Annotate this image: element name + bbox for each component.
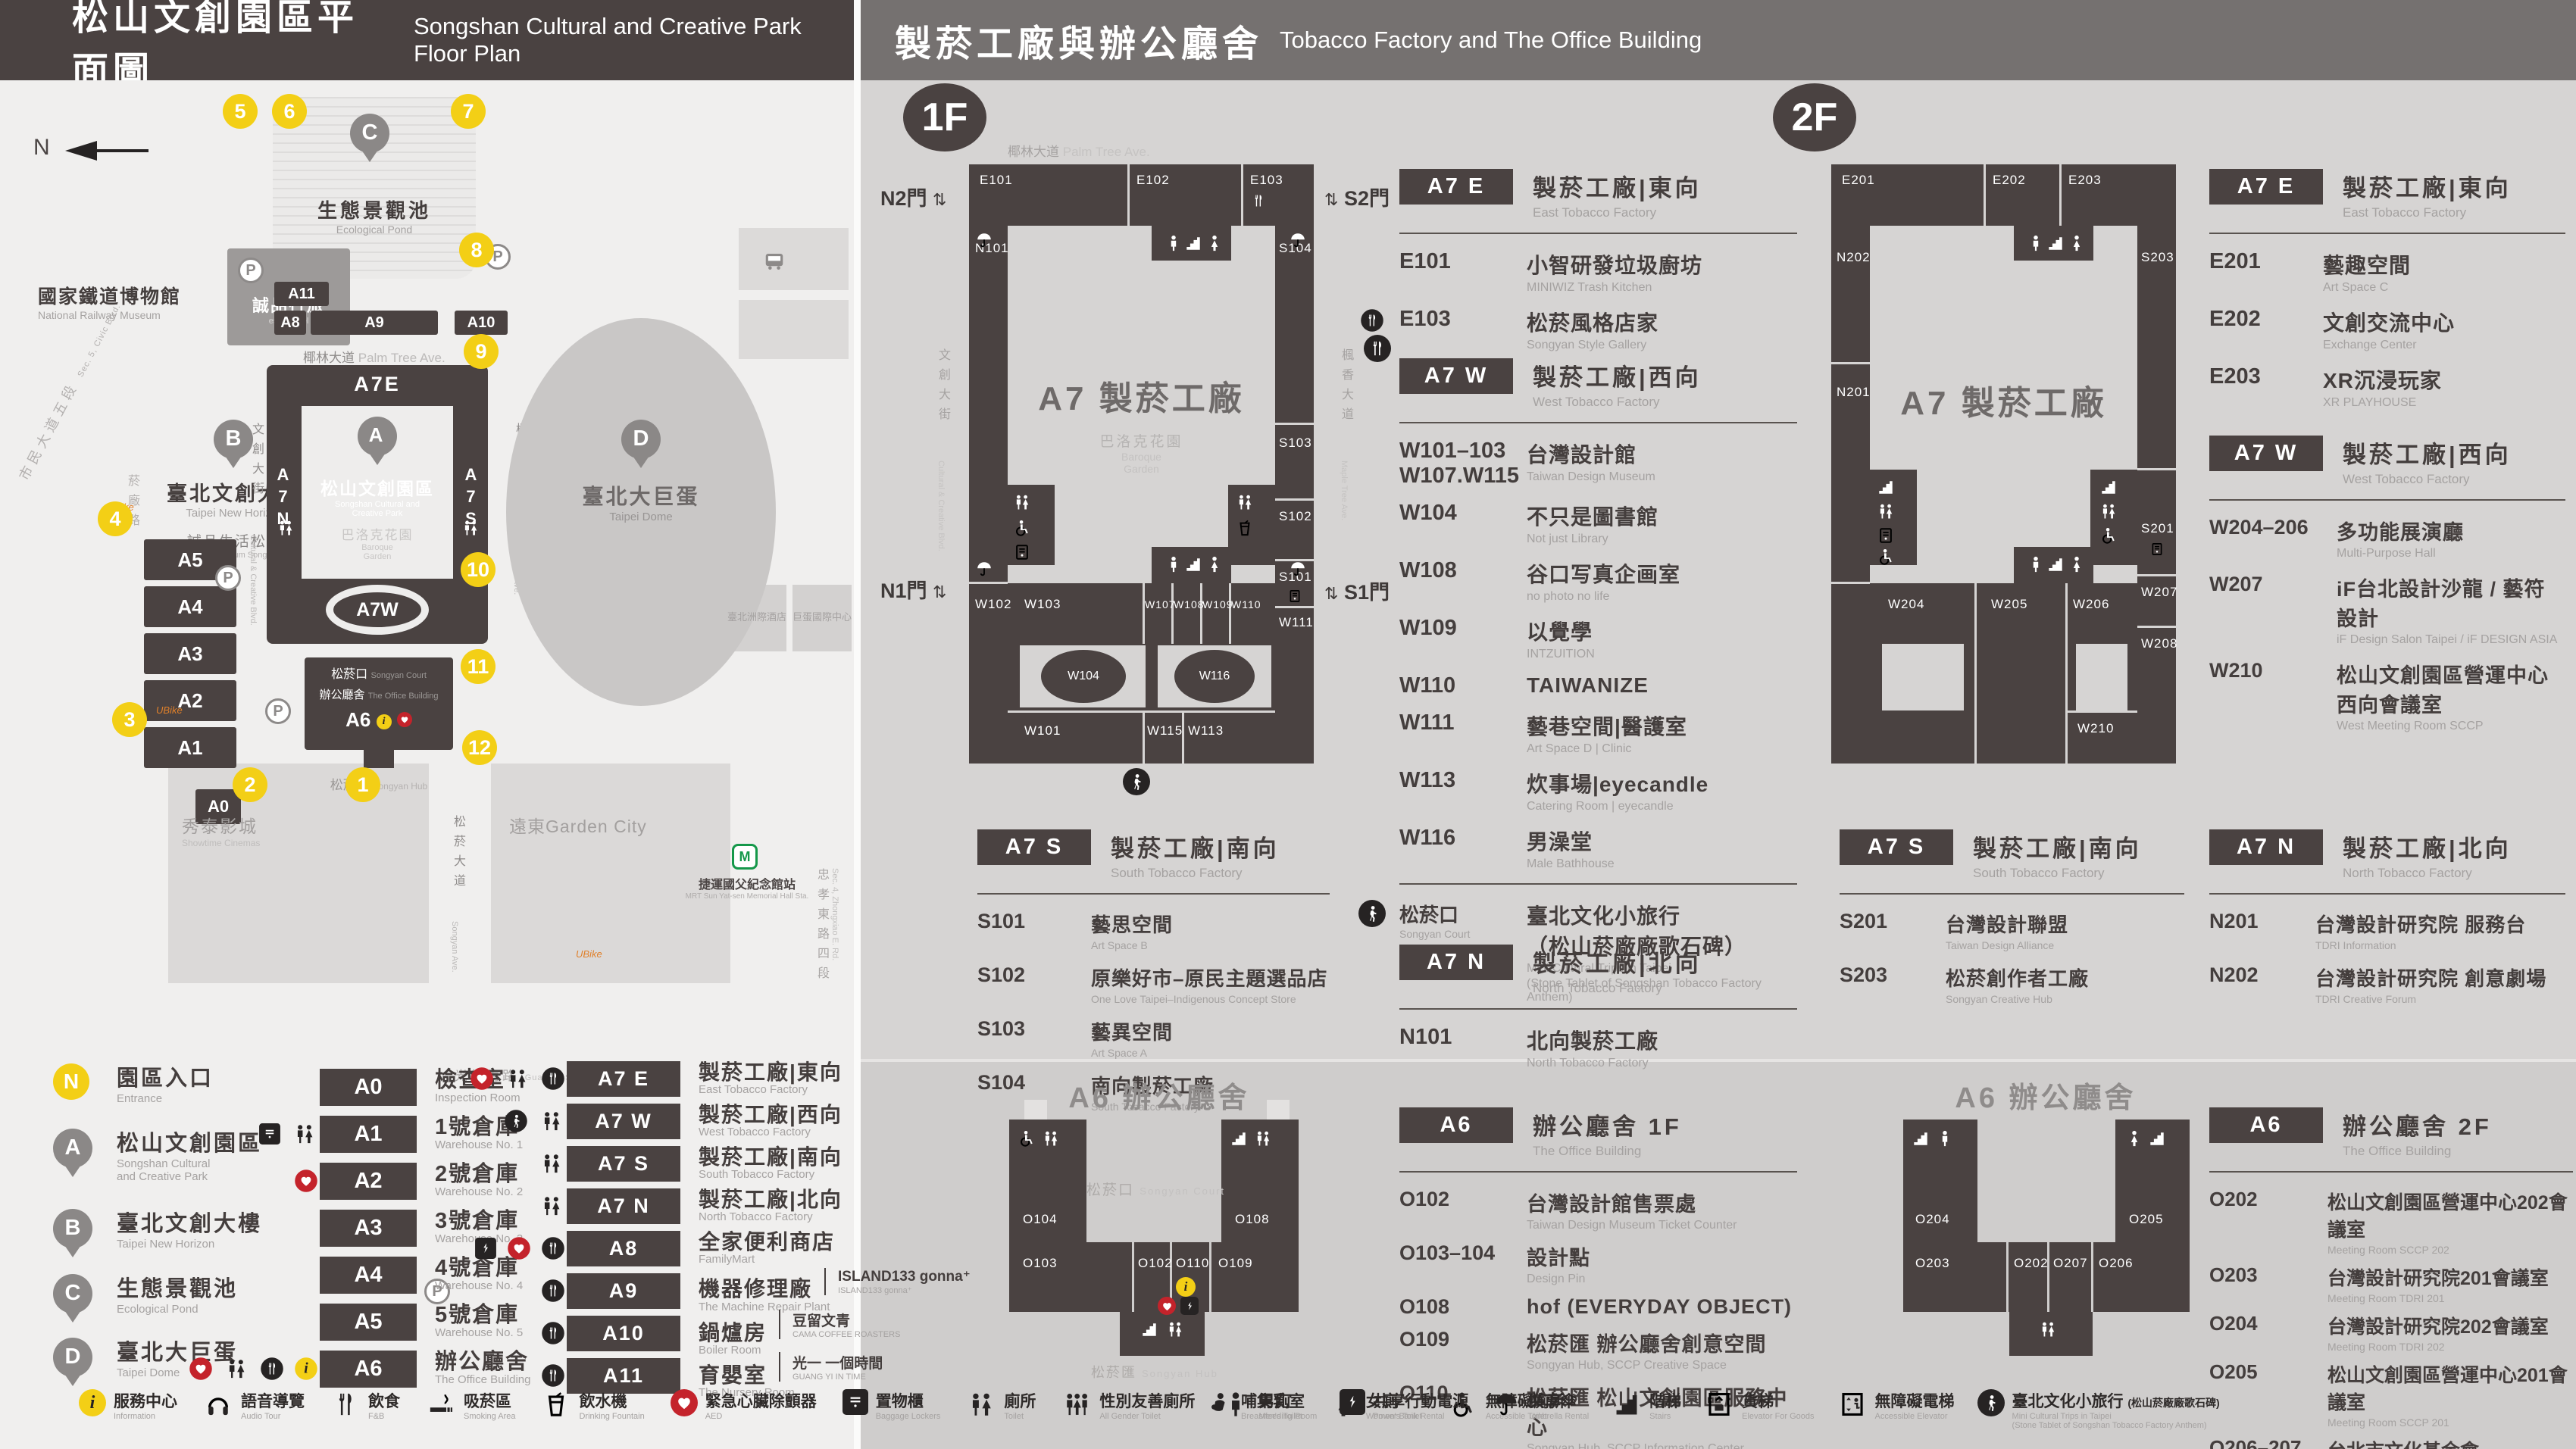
entrance-8: 8 [459, 233, 494, 267]
stairs-icon [1912, 1130, 1929, 1147]
toilet-icon [1236, 494, 1253, 511]
trip-icon [1123, 768, 1150, 795]
umbrella-rental-icon [1491, 1389, 1521, 1419]
room-w108: W108 [1174, 598, 1205, 611]
toilet-icon [1877, 503, 1894, 520]
section-a7e-1f: A7 E 製菸工廠|東向East Tobacco Factory E101 小智… [1399, 169, 1797, 364]
room-row: O206–207 台北市文化基金會松山文創園區營運中心Taipei Cultur… [2209, 1436, 2573, 1449]
room-w101: W101 [1024, 723, 1061, 739]
room-row: O203 台灣設計研究院201會議室Meeting Room TDRI 201 [2209, 1263, 2573, 1304]
room-row: N202 台灣設計研究院 創意劇場TDRI Creative Forum [2209, 963, 2565, 1005]
room-w109: W109 [1202, 598, 1233, 611]
room-w107: W107 [1145, 598, 1176, 611]
toilet-icon [2040, 1321, 2056, 1338]
room-o207: O207 [2053, 1256, 2088, 1271]
women-icon [2126, 1130, 2143, 1147]
room-s201: S201 [2141, 521, 2174, 536]
header-right: 製菸工廠與辦公廳舍 Tobacco Factory and The Office… [861, 0, 2576, 80]
block-a3: A3 [144, 633, 236, 674]
aed-icon [295, 1170, 317, 1192]
compass-arrow-icon [65, 141, 97, 161]
a7e-map-label: A7E [302, 373, 453, 396]
room-w110: W110 [1231, 598, 1261, 611]
f1-street-cultural: 文創大街 [933, 348, 952, 427]
bus-icon [759, 250, 789, 273]
room-row: E202 文創交流中心Exchange Center [2209, 307, 2565, 352]
room-row: W101–103W107.W115 台灣設計館Taiwan Design Mus… [1399, 439, 1797, 489]
fnb-icon [1361, 309, 1383, 332]
block-a4: A4 [144, 586, 236, 627]
a6-1f-bar [1009, 1242, 1299, 1312]
room-row: S201 台灣設計聯盟Taiwan Design Alliance [1840, 910, 2184, 951]
showtime-label: 秀泰影城 Showtime Cinemas [182, 812, 260, 848]
section-chip: A6 [1399, 1107, 1513, 1143]
powerbank-icon [1180, 1297, 1199, 1315]
a6-1f-stub [1120, 1312, 1205, 1356]
section-a6-2f: A6 辦公廳舍 2FThe Office Building O202 松山文創園… [2209, 1107, 2573, 1449]
women-icon [2068, 235, 2085, 251]
floor-plan-poster: 松山文創園區平面圖 Songshan Cultural and Creative… [0, 0, 2576, 1449]
room-row: S203 松菸創作者工廠Songyan Creative Hub [1840, 963, 2184, 1005]
f1-center-label: A7 製菸工廠 巴洛克花園 Baroque Garden [1008, 371, 1275, 475]
info-icon: i [1176, 1277, 1196, 1297]
fnb-icon [542, 1364, 564, 1387]
room-row: O109 松菸匯 辦公廳舍創意空間Songyan Hub, SCCP Creat… [1399, 1328, 1797, 1372]
toilet-icon [505, 1066, 530, 1091]
toilet-icon [277, 520, 294, 536]
room-row: W110 TAIWANIZE [1399, 673, 1797, 698]
umbrella-icon [976, 561, 993, 577]
audio-tour-icon [203, 1389, 233, 1419]
section-chip: A6 [2209, 1107, 2323, 1143]
a6-stub [364, 750, 394, 768]
room-row: W210 松山文創園區營運中心西向會議室West Meeting Room SC… [2209, 659, 2565, 733]
street-civic: 市民大道五段 Sec. 5, Civic Blvd. [14, 298, 124, 483]
legend-row: A7 S 製菸工廠|南向South Tobacco Factory [453, 1144, 971, 1183]
cultural-trip-icon [1977, 1389, 2005, 1416]
room-s203: S203 [2141, 250, 2174, 265]
umbrella-icon [1290, 561, 1306, 577]
wheelchair-icon [1877, 548, 1894, 565]
building-chip: A7 S [567, 1146, 680, 1182]
facility-item: 吸菸區Smoking Area [426, 1389, 515, 1421]
dome-center-label: 巨蛋國際中心 [789, 609, 854, 623]
room-w113: W113 [1188, 723, 1224, 739]
street-cultural-en: Cultural & Creative Blvd. [249, 535, 258, 626]
room-row: W207 iF台北設計沙龍 / 藝符設計iF Design Salon Taip… [2209, 573, 2565, 647]
building-chip: A5 [320, 1304, 417, 1341]
aed-icon [397, 712, 412, 727]
toilet-icon [1167, 1321, 1183, 1338]
room-row: W111 藝巷空間|醫護室Art Space D | Clinic [1399, 710, 1797, 756]
stairs-icon [1185, 556, 1202, 573]
gate-n1: N1門 ⇅ [880, 574, 946, 604]
metro-icon: M [732, 844, 758, 870]
room-w206: W206 [2073, 597, 2109, 612]
men-icon [1937, 1130, 1953, 1147]
legend-row: A8 全家便利商店FamilyMart [453, 1229, 971, 1268]
toilet-icon [462, 520, 479, 536]
women-icon [1206, 556, 1223, 573]
building-chip: A8 [567, 1231, 680, 1266]
entrance-12: 12 [462, 730, 497, 765]
room-w205: W205 [1991, 597, 2027, 612]
garden-city-label: 遠東Garden City [509, 812, 647, 838]
room-row: W104 不只是圖書館Not just Library [1399, 501, 1797, 546]
toilet-icon [1014, 494, 1030, 511]
room-o102: O102 [1138, 1256, 1173, 1271]
entrance-legend-icon: N [53, 1063, 89, 1100]
section-chip: A7 W [2209, 436, 2323, 471]
room-row: E201 藝趣空間Art Space C [2209, 249, 2565, 295]
locker-icon [1877, 527, 1894, 544]
room-n202: N202 [1837, 250, 1871, 265]
stairs-icon [2047, 556, 2064, 573]
toilet-icon [1255, 1130, 1271, 1147]
f2-court-a [1882, 644, 1964, 710]
room-e203: E203 [2068, 173, 2102, 188]
section-a7n-1f: A7 N 製菸工廠|北向North Tobacco Factory N101 北… [1399, 945, 1797, 1082]
street-songyan-en: Songyan Ave. [450, 921, 459, 973]
aed-icon [189, 1357, 212, 1380]
room-row: W109 以覺學INTZUITION [1399, 616, 1797, 661]
facility-item: i 服務中心Information [79, 1389, 177, 1421]
toilet-icon [292, 1122, 317, 1147]
men-icon [1165, 556, 1182, 573]
facility-item: 置物櫃Baggage Lockers [843, 1389, 941, 1421]
pond-label: 生態景觀池 Ecological Pond [273, 195, 476, 236]
section-a7e-2f: A7 E 製菸工廠|東向East Tobacco Factory E201 藝趣… [2209, 169, 2565, 422]
fnb-icon [1252, 194, 1265, 208]
section-title-en: Tobacco Factory and The Office Building [1280, 27, 1702, 54]
room-w111: W111 [1279, 615, 1314, 630]
umbrella-icon [1290, 232, 1306, 248]
street-songyan: 松菸大道 [449, 815, 467, 894]
entrance-1: 1 [345, 767, 380, 802]
section-chip: A7 S [977, 829, 1091, 865]
legend-buildings-b: A7 E 製菸工廠|東向East Tobacco Factory A7 W 製菸… [453, 1059, 971, 1398]
a6-1f-chimney [1267, 1100, 1290, 1121]
legend-entrance: N 園區入口 Entrance [53, 1060, 214, 1105]
f2-court-b [2076, 644, 2127, 710]
street-palm: 椰林大道 Palm Tree Ave. [303, 347, 445, 366]
locker-icon [843, 1389, 868, 1415]
room-row: S101 藝思空間Art Space B [977, 910, 1330, 951]
men-icon [1165, 235, 1182, 251]
room-e103: E103 [1250, 173, 1283, 188]
room-row: E103 松菸風格店家Songyan Style Gallery [1399, 307, 1797, 352]
entrance-6: 6 [272, 94, 307, 129]
room-o202: O202 [2014, 1256, 2049, 1271]
fnb-icon [330, 1389, 361, 1419]
ubike-label: UBike [156, 704, 183, 716]
facility-item: 哺集乳室 Breastfeeding Room [1203, 1389, 1317, 1421]
facility-legend-right: 哺集乳室 Breastfeeding Room 共享行動電源 Power Ban… [1203, 1389, 2220, 1430]
facility-item: 廁所Toilet [966, 1389, 1036, 1421]
room-row: O108 hof (EVERYDAY OBJECT) [1399, 1295, 1797, 1319]
women-icon [1206, 235, 1223, 251]
f1-right-col [1275, 226, 1314, 764]
building-chip: A0 [320, 1069, 417, 1106]
gate-s1: ⇅ S1門 [1324, 576, 1390, 605]
facility-item: 臺北文化小旅行 (松山菸廠廠歌石碑)Mini Cultural Trips in… [1977, 1389, 2220, 1430]
room-o108: O108 [1235, 1212, 1270, 1227]
room-w204: W204 [1888, 597, 1924, 612]
cultural-trip-icon [505, 1110, 527, 1132]
block-a10: A10 [455, 311, 508, 335]
entrance-3: 3 [112, 702, 147, 737]
room-row: O204 台灣設計研究院202會議室Meeting Room TDRI 202 [2209, 1312, 2573, 1353]
building-chip: A6 [320, 1351, 417, 1388]
room-s102: S102 [1279, 509, 1312, 524]
room-w102: W102 [975, 597, 1011, 612]
facility-item: 語音導覽Audio Tour [203, 1389, 305, 1421]
breastfeeding-room-icon [1203, 1389, 1233, 1419]
room-w104: W104 [1041, 650, 1126, 703]
section-chip: A7 E [2209, 169, 2323, 205]
hotel-ic-label: 臺北洲際酒店 [724, 609, 789, 623]
women-icon [2068, 556, 2085, 573]
entrance-7: 7 [451, 94, 486, 129]
room-o110: O110 [1176, 1256, 1209, 1271]
room-row: E203 XR沉浸玩家XR PLAYHOUSE [2209, 364, 2565, 410]
a6-1f-hub-label: 松菸匯 Songyan Hub [1091, 1362, 1218, 1382]
room-w116: W116 [1174, 650, 1255, 703]
room-row: O103–104 設計點Design Pin [1399, 1241, 1797, 1286]
pin-a: A [358, 417, 394, 465]
building-chip: A1 [320, 1116, 417, 1153]
a6-1f-court-label: 松菸口 Songyan Court [1086, 1179, 1225, 1199]
stairs-icon [2047, 235, 2064, 251]
page-title-zh: 松山文創園區平面圖 [72, 0, 397, 93]
stairs-icon [1230, 1130, 1247, 1147]
room-row: W116 男澡堂Male Bathhouse [1399, 826, 1797, 871]
block-a8: A8 [274, 311, 306, 335]
room-w207: W207 [2141, 585, 2177, 600]
section-title-zh: 製菸工廠與辦公廳舍 [895, 14, 1263, 67]
room-row: O102 台灣設計館售票處Taiwan Design Museum Ticket… [1399, 1188, 1797, 1232]
cargo-elevator-icon [1704, 1389, 1734, 1419]
building-chip: A11 [567, 1358, 680, 1394]
fnb-icon [542, 1322, 564, 1344]
entrance-10: 10 [461, 552, 496, 587]
wheelchair-icon [1018, 1130, 1035, 1147]
section-chip: A7 N [2209, 829, 2323, 865]
room-e101: E101 [980, 173, 1013, 188]
a6-block: 松菸口 Songyan Court 辦公廳舍 The Office Buildi… [305, 657, 453, 750]
compass-label: N [33, 135, 50, 161]
fnb-icon [542, 1237, 564, 1260]
ubike-label: UBike [576, 948, 602, 960]
badge-1f: 1F [903, 83, 986, 151]
aed-icon [671, 1389, 698, 1416]
f2-right-col [2137, 226, 2176, 764]
locker-icon [2150, 542, 2164, 556]
f1-street-cultural-en: Cultural & Creative Blvd. [936, 461, 946, 551]
section-chip: A7 W [1399, 358, 1513, 394]
room-o206: O206 [2099, 1256, 2134, 1271]
umbrella-icon [976, 232, 993, 248]
drinking-fountain-icon [541, 1389, 571, 1419]
pin-d-icon: D [53, 1338, 92, 1389]
badge-2f: 2F [1773, 83, 1856, 151]
facility-item: 貨梯 Elevator For Goods [1704, 1389, 1814, 1421]
facility-item: 無障礙電梯 Accessible Elevator [1837, 1389, 1955, 1421]
locker-icon [259, 1123, 280, 1145]
trip-icon [1358, 900, 1386, 927]
toilet-icon [224, 1357, 249, 1382]
mrt-label: 捷運國父紀念館站 MRT Sun Yat-sen Memorial Hall S… [679, 874, 815, 901]
room-o205: O205 [2129, 1212, 2164, 1227]
info-icon: i [79, 1389, 106, 1416]
room-row: W204–206 多功能展演廳Multi-Purpose Hall [2209, 516, 2565, 561]
toilet-icon [539, 1151, 564, 1176]
legend-row: A9 機器修理廠ISLAND133 gonna⁺ISLAND133 gonna⁺… [453, 1271, 971, 1310]
wheelchair-icon [2100, 527, 2117, 544]
f1-street-palm: 椰林大道 Palm Tree Ave. [1008, 141, 1150, 160]
building-chip: A2 [320, 1163, 417, 1200]
gate-n2: N2門 ⇅ [880, 182, 946, 211]
sccp-label: 松山文創園區 Songshan Cultural and Creative Pa… [302, 474, 453, 561]
legend-row: A7 N 製菸工廠|北向North Tobacco Factory [453, 1186, 971, 1226]
section-a7w-1f: A7 W 製菸工廠|西向West Tobacco Factory W101–10… [1399, 358, 1797, 1004]
header-left: 松山文創園區平面圖 Songshan Cultural and Creative… [0, 0, 856, 80]
page-title-en: Songshan Cultural and Creative Park Floo… [414, 13, 856, 67]
toilet-icon [539, 1109, 564, 1134]
building-chip: A10 [567, 1316, 680, 1351]
facility-item: 階梯 Stairs [1612, 1389, 1681, 1421]
locker-icon [1014, 544, 1030, 561]
entrance-2: 2 [233, 767, 267, 802]
building-chip: A9 [567, 1273, 680, 1309]
water-icon [1236, 520, 1253, 536]
parking-icon: P [215, 565, 241, 591]
f1-left-col [969, 226, 1008, 764]
toilet-icon [966, 1389, 996, 1419]
legend-row: A10 鍋爐房豆留文青CAMA COFFEE ROASTERSBoiler Ro… [453, 1313, 971, 1353]
locker-icon [1288, 589, 1302, 603]
stairs-icon [2149, 1130, 2165, 1147]
info-icon: i [295, 1357, 317, 1380]
building-chip: A7 W [567, 1104, 680, 1139]
facility-item: 共享行動電源 Power Bank Rental [1340, 1389, 1468, 1421]
f2-center-label: A7 製菸工廠 [1870, 376, 2137, 424]
room-s103: S103 [1279, 436, 1312, 451]
entrance-9: 9 [464, 334, 499, 369]
facility-item: 性別友善廁所All Gender Toilet [1061, 1389, 1195, 1421]
aed-icon [508, 1237, 530, 1260]
section-a7w-2f: A7 W 製菸工廠|西向West Tobacco Factory W204–20… [2209, 436, 2565, 745]
pin-c-icon: C [53, 1274, 92, 1326]
legend-row: A7 W 製菸工廠|西向West Tobacco Factory [453, 1101, 971, 1141]
room-row: N201 台灣設計研究院 服務台TDRI Information [2209, 910, 2565, 951]
wheelchair-icon [1014, 520, 1030, 536]
a6-2f-bar [1903, 1242, 2190, 1312]
a6-1f-chimney [1024, 1100, 1047, 1121]
street-zhongxiao-en: Sec. 4, Zhongxiao E. Rd. [830, 868, 839, 960]
fnb-icon [261, 1357, 283, 1380]
city-block [739, 228, 849, 290]
facility-item: 飲水機Drinking Fountain [541, 1389, 644, 1421]
room-row: S103 藝異空間Art Space A [977, 1017, 1330, 1059]
room-o103: O103 [1023, 1256, 1058, 1271]
room-w115: W115 [1147, 723, 1183, 739]
powerbank-icon [475, 1238, 496, 1259]
block-a9: A9 [311, 311, 438, 335]
f1-street-maple: 楓香大道 [1336, 348, 1355, 427]
room-o104: O104 [1023, 1212, 1058, 1227]
aed-icon [1158, 1297, 1176, 1315]
room-row: N101 北向製菸工廠North Tobacco Factory [1399, 1025, 1797, 1070]
entrance-11: 11 [461, 649, 496, 684]
building-chip: A4 [320, 1257, 417, 1294]
a6-1f-map-title: A6 辦公廳舍 [1008, 1074, 1311, 1116]
pin-c: C [350, 114, 389, 165]
fnb-icon [1364, 335, 1391, 362]
section-a7s-2f: A7 S 製菸工廠|南向South Tobacco Factory S201 台… [1840, 829, 2184, 1017]
room-w210: W210 [2077, 721, 2114, 736]
facility-item: 緊急心臟除顫器AED [671, 1389, 817, 1421]
room-o203: O203 [1915, 1256, 1950, 1271]
smoking-area-icon [426, 1389, 456, 1419]
building-chip: A3 [320, 1210, 417, 1247]
legend-row: A7 E 製菸工廠|東向East Tobacco Factory [453, 1059, 971, 1098]
section-chip: A7 E [1399, 169, 1513, 205]
room-row: E101 小智研發垃圾廚坊MINIWIZ Trash Kitchen [1399, 249, 1797, 295]
parking-icon: P [238, 258, 264, 283]
room-row: W108 谷口写真企画室no photo no life [1399, 558, 1797, 604]
entrance-4: 4 [98, 501, 133, 536]
powerbank-icon [1340, 1389, 1365, 1415]
room-row: W113 炊事場|eyecandleCatering Room | eyecan… [1399, 768, 1797, 814]
compass-arrow-tail [97, 149, 148, 152]
fnb-icon [542, 1067, 564, 1090]
pin-a-icon: A [53, 1129, 92, 1180]
pin-d: D [621, 420, 661, 471]
room-o109: O109 [1218, 1256, 1253, 1271]
building-chip: A7 E [567, 1061, 680, 1097]
stairs-icon [2100, 479, 2117, 495]
a7w-oval: A7W [326, 585, 429, 635]
f1-street-maple-en: Maple Tree Ave. [1340, 461, 1349, 520]
facility-item: 飲食F&B [330, 1389, 400, 1421]
accessible-elevator-icon [1837, 1389, 1868, 1419]
block-a1: A1 [144, 727, 236, 768]
garden-city-block [491, 764, 730, 983]
stairs-icon [1877, 479, 1894, 495]
room-w208: W208 [2141, 636, 2177, 651]
pin-b-icon: B [53, 1209, 92, 1260]
room-row: O205 松山文創園區營運中心201會議室Meeting Room SCCP 2… [2209, 1360, 2573, 1429]
f2-left-col [1831, 226, 1870, 764]
room-o204: O204 [1915, 1212, 1950, 1227]
aed-icon [470, 1067, 493, 1090]
stairs-icon [1612, 1389, 1642, 1419]
men-icon [2027, 556, 2044, 573]
room-row: S102 原樂好市–原民主題選品店One Love Taipei–Indigen… [977, 963, 1330, 1005]
men-icon [2027, 235, 2044, 251]
all-gender-toilet-icon [1061, 1389, 1092, 1419]
section-chip: A7 S [1840, 829, 1953, 865]
toilet-icon [1043, 1130, 1059, 1147]
room-row: O202 松山文創園區營運中心202會議室Meeting Room SCCP 2… [2209, 1188, 2573, 1256]
toilet-icon [2100, 503, 2117, 520]
info-icon: i [377, 714, 392, 729]
entrance-5: 5 [223, 94, 258, 129]
building-chip: A7 N [567, 1188, 680, 1224]
dome-label: 臺北大巨蛋 Taipei Dome [542, 480, 739, 523]
block-a11: A11 [274, 282, 329, 306]
